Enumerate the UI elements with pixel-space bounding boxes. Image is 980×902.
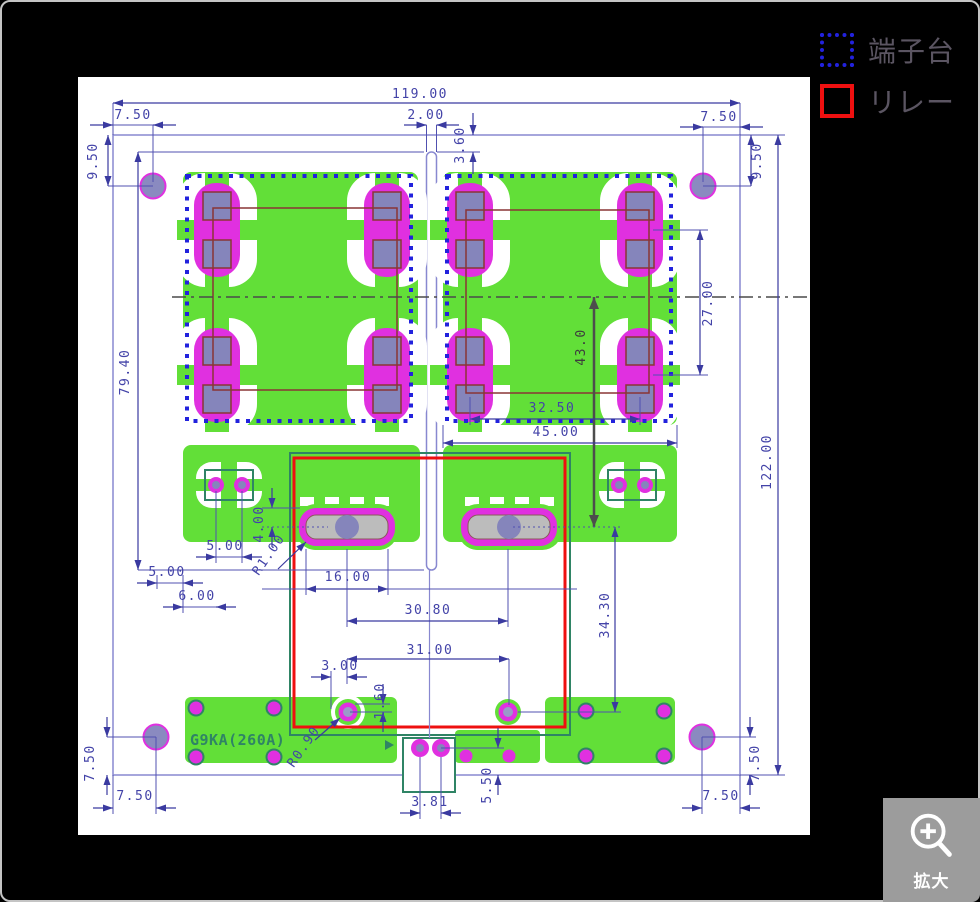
dim-slot-width — [404, 125, 459, 152]
footprint-drawing: G9KA(260A) — [78, 77, 810, 835]
dim-label-center-to-pad: 43.0 — [574, 328, 589, 365]
dim-label-via-pitch: 5.00 — [206, 539, 243, 554]
terminal-block-label: 端子台 — [868, 30, 955, 70]
legend-item-terminal-block: 端子台 — [820, 30, 955, 70]
dim-label-hole-bl-x: 7.50 — [116, 789, 153, 804]
dim-label-height-total: 122.00 — [760, 434, 775, 490]
relay-swatch — [820, 84, 854, 118]
zoom-enlarge-label: 拡大 — [914, 867, 950, 892]
dim-label-width-total: 119.00 — [392, 87, 448, 102]
dim-label-hole-br-x: 7.50 — [702, 789, 739, 804]
dim-label-slot-pad-pitch: 30.80 — [405, 603, 452, 618]
dim-label-hole-inset-right: 9.50 — [750, 142, 765, 179]
magnifier-plus-icon — [903, 808, 961, 866]
coil-pin-component — [403, 738, 455, 792]
dim-label-hole-inset-left: 9.50 — [86, 142, 101, 179]
pcb-footprint-drawing-page: 端子台 リレー — [0, 0, 980, 902]
drawing-canvas: G9KA(260A) — [78, 77, 810, 835]
part-label: G9KA(260A) — [190, 731, 285, 749]
dim-label-pin-pitch: 3.81 — [411, 795, 448, 810]
dim-label-pin-edge-gap: 5.50 — [480, 766, 495, 803]
dim-label-pad-row-pitch: 27.00 — [701, 280, 716, 327]
legend-item-relay: リレー — [820, 81, 955, 121]
dim-label-pad-col-pitch: 32.50 — [529, 401, 576, 416]
relay-label: リレー — [868, 81, 955, 121]
dim-label-slot-pad-width: 16.00 — [325, 570, 372, 585]
dim-label-coil-offset-y: 1.60 — [373, 682, 388, 719]
dim-label-block-width: 45.00 — [533, 425, 580, 440]
dim-label-slot-width: 2.00 — [407, 108, 444, 123]
legend: 端子台 リレー — [820, 30, 955, 132]
zoom-enlarge-button[interactable]: 拡大 — [883, 798, 980, 902]
terminal-block-swatch — [820, 33, 854, 67]
dim-label-pad-top-offset: 4.00 — [252, 505, 267, 542]
dim-slot-pad-width — [262, 549, 577, 595]
dim-label-slot-top-gap: 3.60 — [453, 126, 468, 163]
dim-label-offset-top-left: 7.50 — [114, 108, 151, 123]
dim-label-slot-length: 79.40 — [118, 349, 133, 396]
dim-label-hole-bl-y: 7.50 — [83, 744, 98, 781]
dim-label-edge-gap: 5.00 — [148, 565, 185, 580]
dim-offset-top-left — [90, 118, 176, 182]
dim-label-relay-depth: 34.30 — [598, 592, 613, 639]
dim-label-hole-br-y: 7.50 — [748, 744, 763, 781]
dim-label-coil-offset-x: 3.00 — [321, 659, 358, 674]
dim-label-coil-pad-pitch: 31.00 — [407, 643, 454, 658]
dim-label-via-edge-offset: 6.00 — [178, 589, 215, 604]
dim-label-offset-top-right: 7.50 — [700, 110, 737, 125]
